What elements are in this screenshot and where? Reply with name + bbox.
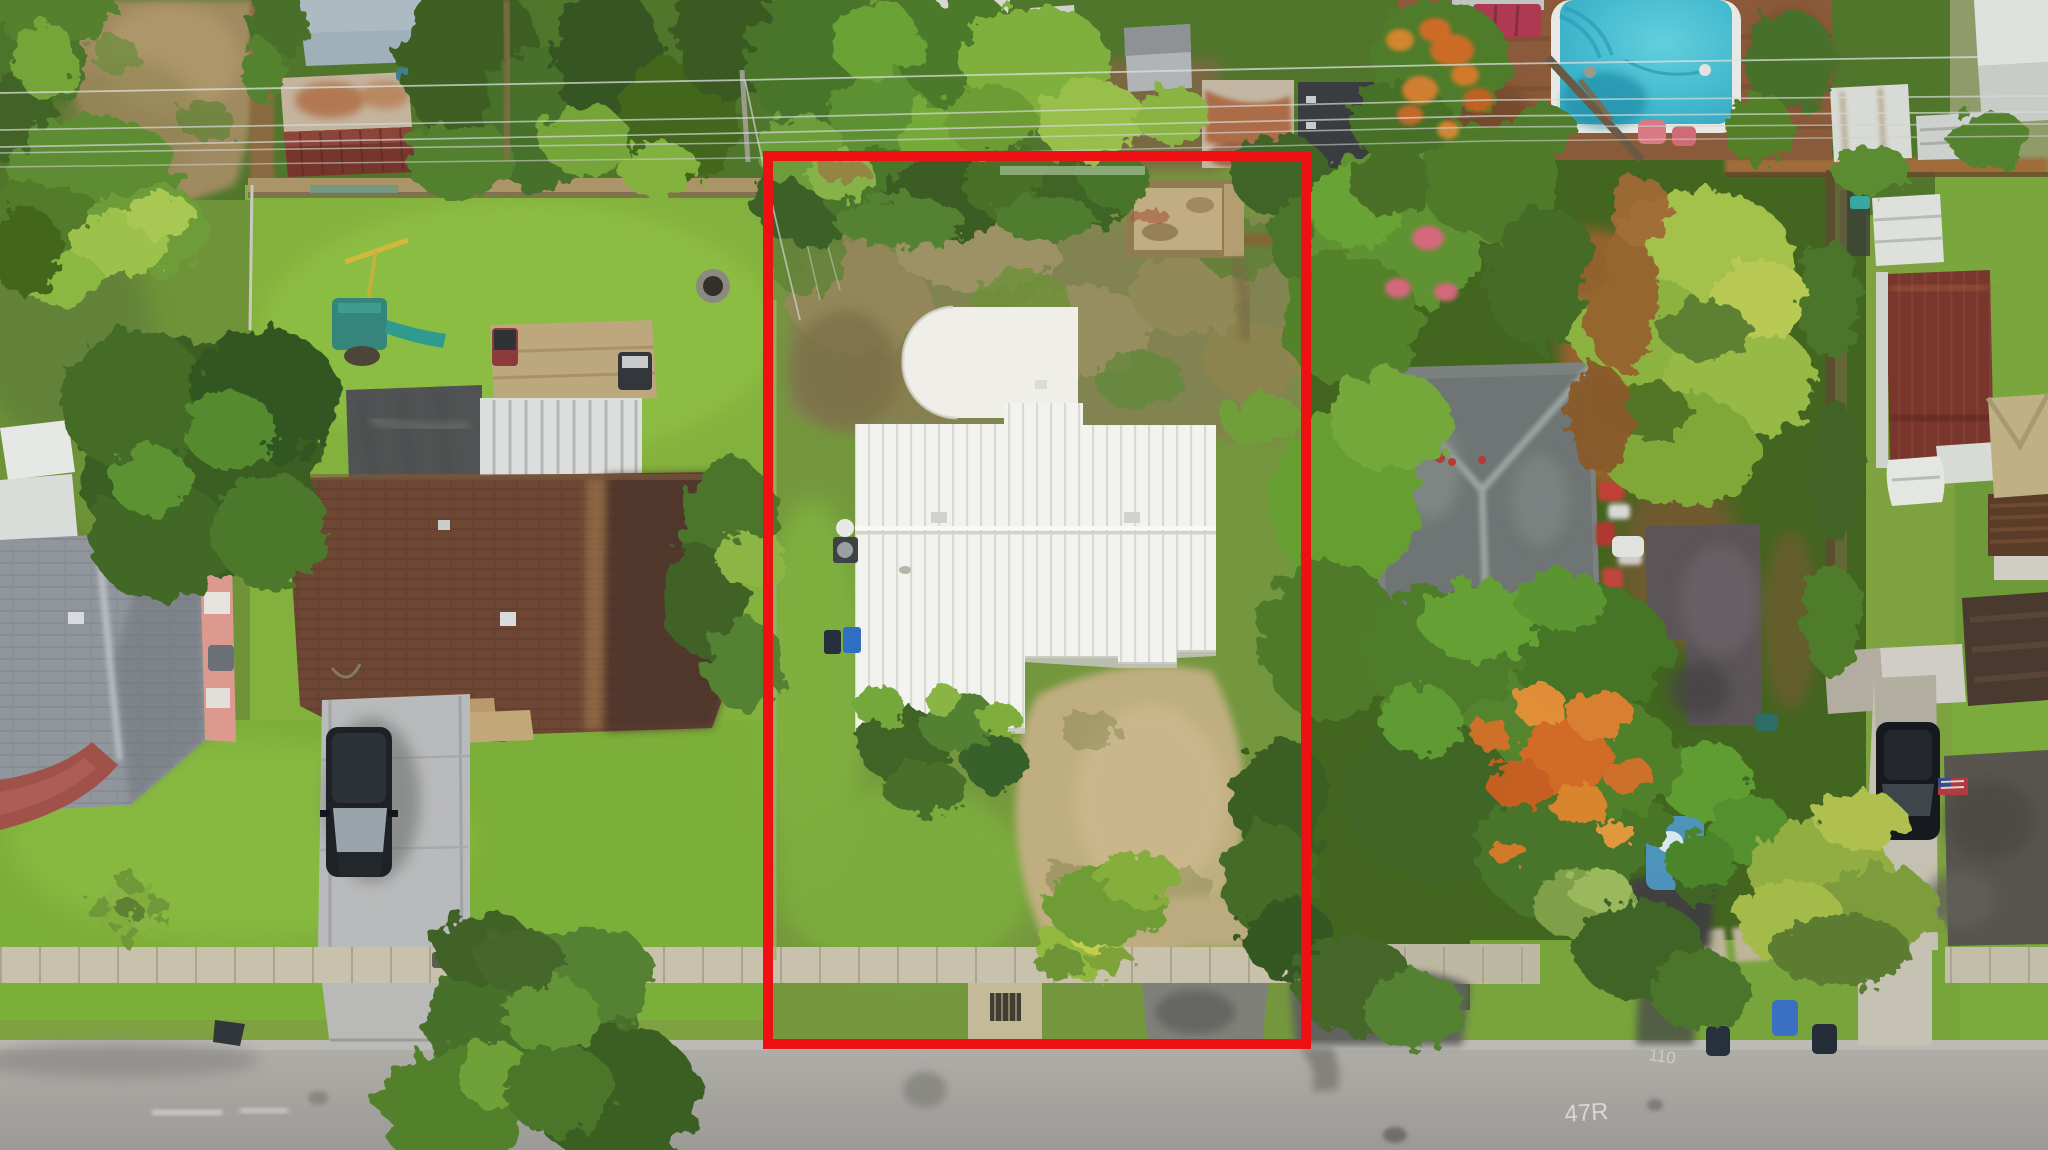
svg-text:110: 110 <box>1647 1045 1676 1068</box>
svg-text:47R: 47R <box>1564 1098 1610 1128</box>
